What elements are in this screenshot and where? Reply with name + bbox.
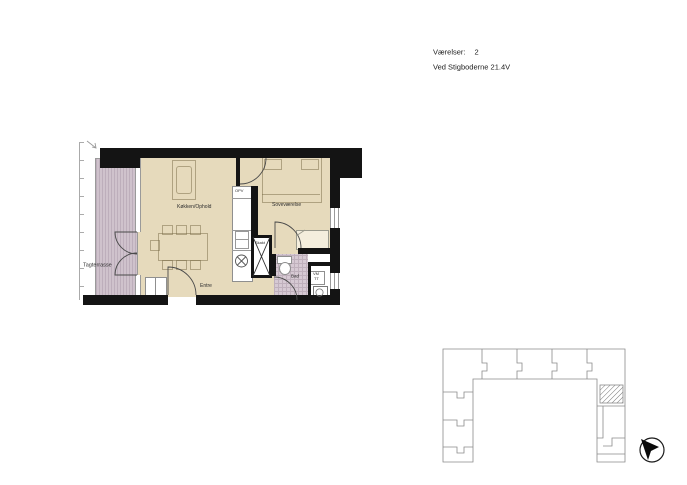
bed-foot-line [262,194,320,195]
chair [190,260,201,270]
rooms-row: Værelser:2 [433,48,593,57]
plan-header: Værelser:2 Ved Stigboderne 21.4V [433,48,593,72]
wall [136,295,168,305]
counter-divider [232,198,251,199]
terrace-window-wall [135,275,141,295]
room-label-kitchen: Køkken/Ophold [177,204,211,210]
utility-window [330,273,340,289]
wall [298,248,330,254]
terrace-railing [79,142,84,300]
kitchen-sink [235,239,249,249]
wall [330,228,340,273]
wall-recess [308,254,332,262]
wall [251,186,258,235]
chair [150,240,160,251]
room-label-entrance: Entre [200,283,212,289]
north-arrow-icon [640,438,664,462]
terrace-window-wall [135,158,141,232]
chair [176,260,187,270]
room-label-tt: TT [314,277,319,281]
kitchen-island-top [176,166,192,194]
chair [190,225,201,235]
chair [162,225,173,235]
toilet-bowl [279,262,291,275]
room-label-shaft: Skakt [255,241,265,245]
room-label-opv: OPV [235,189,243,193]
wall [83,295,140,305]
wall [308,262,332,266]
terrace-floor [95,158,138,299]
address-label: Ved Stigboderne 21.4V [433,63,593,72]
room-label-vm: VM [313,272,319,276]
slope-mark [87,141,96,148]
wall [136,148,332,158]
floor-plan-page: Værelser:2 Ved Stigboderne 21.4V [0,0,687,485]
counter-divider [232,250,251,251]
wall [330,158,340,208]
rooms-value: 2 [475,48,479,57]
wardrobe [296,230,329,250]
wall [272,254,276,276]
rooms-label: Værelser: [433,48,466,57]
highlighted-unit [600,385,623,403]
bedroom-window [330,208,340,228]
room-label-terrace: Tagterrasse [83,262,112,268]
wall [236,158,240,186]
wall [196,295,340,305]
dining-table [158,233,208,261]
wall [308,266,311,305]
room-label-bathroom: Bad [291,274,299,279]
chair [176,225,187,235]
pillow [264,159,282,170]
chair [162,260,173,270]
building-outline [443,349,625,462]
room-label-bedroom: Soveværelse [272,202,301,208]
pillow [301,159,319,170]
wall [100,148,140,168]
site-plan [440,342,687,482]
